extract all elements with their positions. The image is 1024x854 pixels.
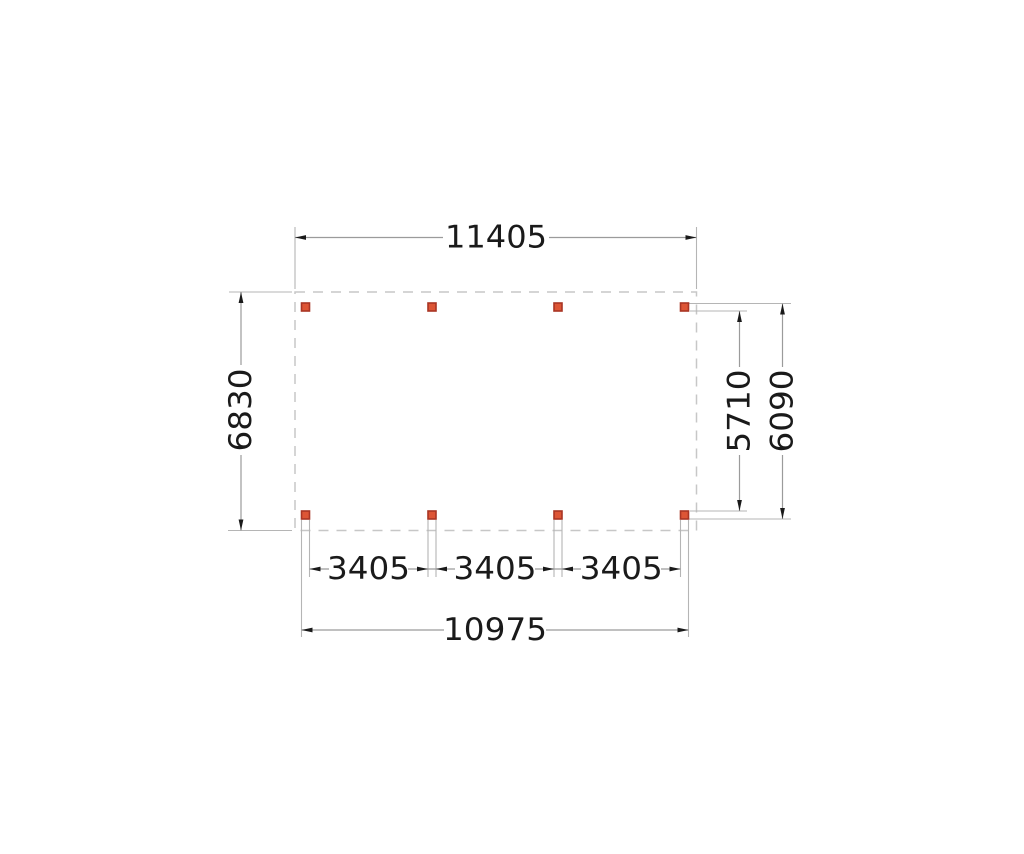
post-marker (554, 303, 562, 311)
post-marker (681, 303, 689, 311)
floor-plan-drawing: 11405 6830 5710 6090 3405 3405 3405 1097… (0, 0, 1024, 854)
arrowhead (737, 500, 742, 511)
post-marker (428, 511, 436, 519)
post-markers (302, 303, 689, 519)
post-marker (681, 511, 689, 519)
dim-bottom-label: 10975 (443, 612, 547, 648)
arrowhead (543, 567, 554, 572)
arrowhead (780, 508, 785, 519)
arrowhead (562, 567, 573, 572)
dim-bay-1-label: 3405 (327, 551, 410, 587)
arrowhead (310, 567, 321, 572)
arrowhead (678, 628, 689, 633)
arrowhead (780, 304, 785, 315)
arrowhead (239, 520, 244, 531)
dim-top-label: 11405 (445, 220, 547, 256)
arrowhead (670, 567, 681, 572)
dim-bay-3-label: 3405 (580, 551, 663, 587)
post-marker (302, 303, 310, 311)
arrowhead (239, 292, 244, 303)
post-marker (302, 511, 310, 519)
arrowhead (417, 567, 428, 572)
arrowhead (737, 311, 742, 322)
arrowhead (686, 235, 697, 240)
arrowhead (295, 235, 306, 240)
dimension-labels: 11405 6830 5710 6090 3405 3405 3405 1097… (223, 220, 801, 649)
roof-outline (295, 292, 697, 531)
post-marker (554, 511, 562, 519)
post-marker (428, 303, 436, 311)
arrowhead (302, 628, 313, 633)
arrowhead (436, 567, 447, 572)
dim-bay-2-label: 3405 (454, 551, 537, 587)
dim-right-outer-label: 6090 (765, 370, 801, 453)
floor-plan-canvas: 11405 6830 5710 6090 3405 3405 3405 1097… (0, 0, 1024, 854)
dim-right-inner-label: 5710 (722, 370, 758, 453)
dim-left-label: 6830 (223, 369, 259, 452)
